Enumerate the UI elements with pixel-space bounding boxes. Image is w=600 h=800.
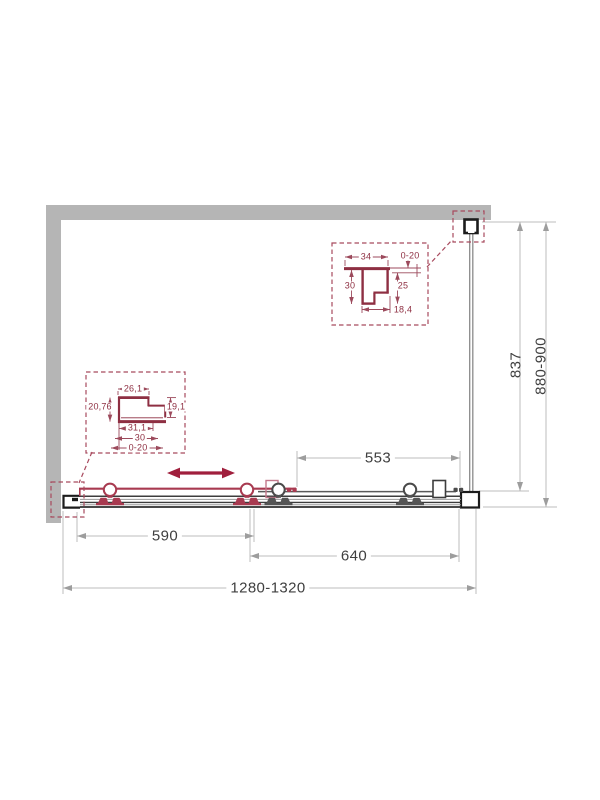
callout-leader	[427, 240, 452, 267]
dim-front-total-label: 1280-1320	[226, 581, 309, 596]
top-profile-inner-label: 25	[396, 282, 410, 291]
bottom-profile-width1-label: 31,1	[126, 424, 148, 433]
drawing-svg	[0, 0, 600, 800]
bottom-profile-drawing	[118, 397, 166, 423]
callout-leader	[79, 452, 92, 483]
dim-side-glass-label: 837	[509, 352, 524, 378]
top-profile-gap-label: 0-20	[399, 252, 422, 261]
wall-structure	[46, 205, 491, 523]
technical-drawing-canvas: 553 590 640 1280-1320 837 880-900 34 0-2…	[0, 0, 600, 800]
bottom-profile-width2-label: 30	[133, 434, 147, 443]
dim-fixed-front-label: 553	[361, 451, 395, 466]
door-stopper-gray	[433, 481, 446, 498]
screw-icon	[287, 488, 291, 492]
top-profile-depth-label: 30	[343, 282, 357, 291]
wall-left	[46, 205, 61, 523]
screw-icon	[293, 488, 297, 492]
dim-door-width-label: 590	[148, 529, 182, 544]
dim-opening-width-label: 640	[337, 549, 371, 564]
dimension-lines	[63, 222, 557, 594]
top-profile-width-label: 34	[359, 253, 373, 262]
screw-icon	[454, 488, 458, 492]
glass-side-panel	[461, 232, 479, 508]
bottom-profile-top-label: 26,1	[122, 385, 144, 394]
top-profile-bottom-label: 18,4	[392, 306, 414, 315]
wall-bracket	[465, 220, 478, 234]
screw-icon	[459, 488, 463, 492]
bottom-profile-gap-label: 0-20	[127, 444, 150, 453]
slide-direction-arrow-icon	[167, 468, 235, 479]
rail-end-cap	[461, 492, 479, 508]
bottom-profile-right-label: 19,1	[165, 403, 187, 412]
dim-side-total-label: 880-900	[534, 337, 549, 395]
wall-top	[46, 205, 491, 220]
wall-rail-profile	[64, 496, 81, 508]
bottom-profile-left-label: 20,76	[86, 403, 114, 412]
